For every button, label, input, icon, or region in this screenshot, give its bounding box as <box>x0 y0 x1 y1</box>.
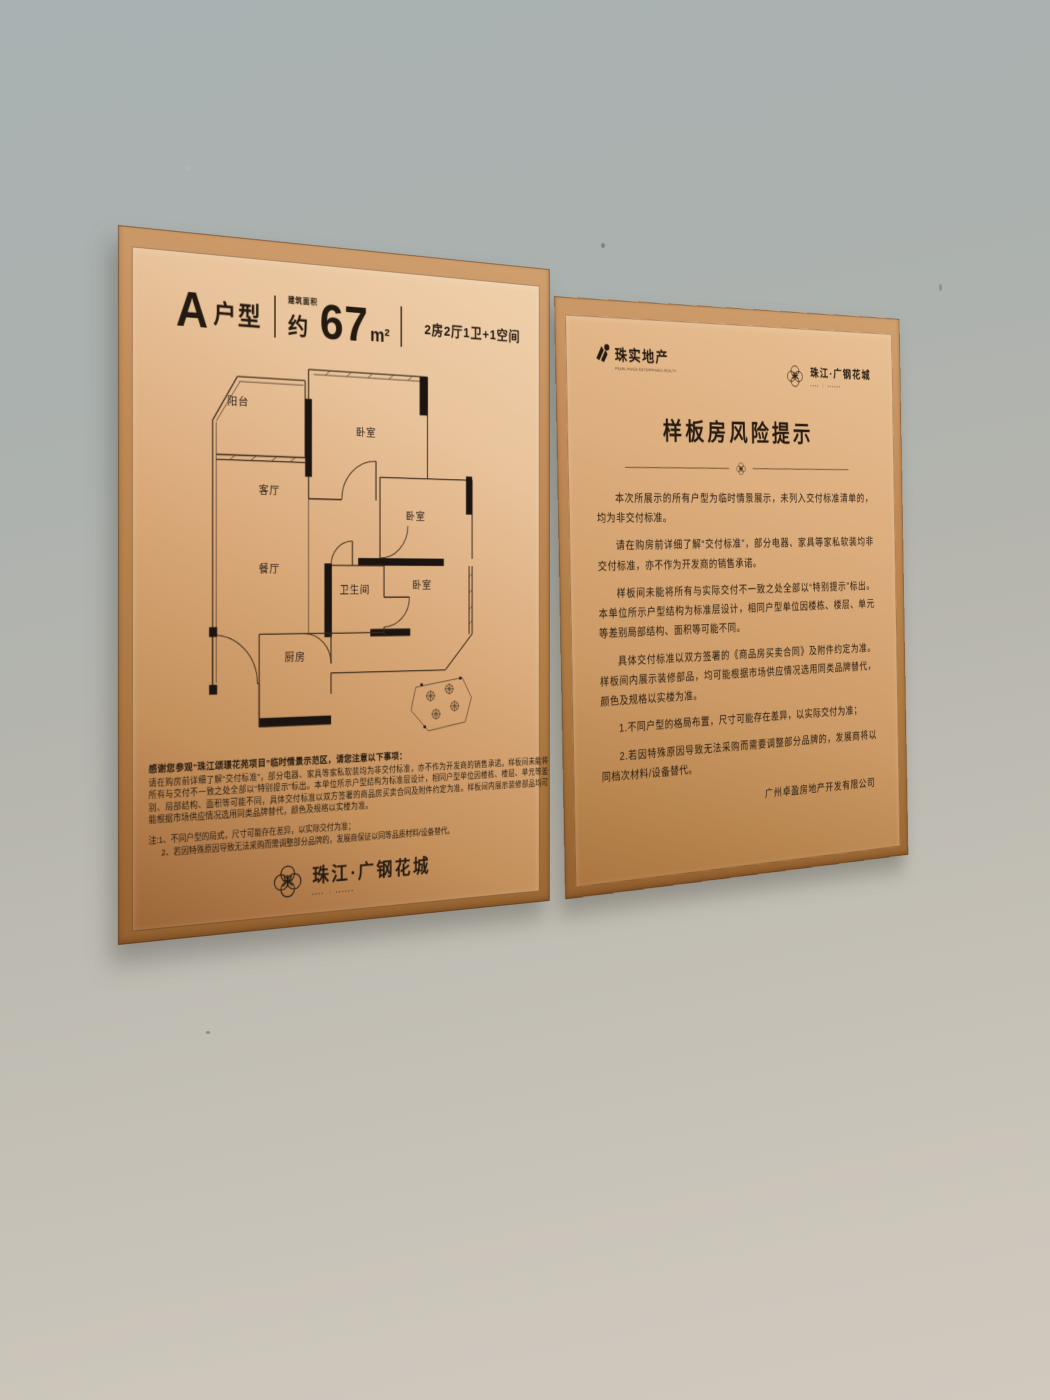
title-divider: 米 <box>596 460 872 477</box>
developer-name: 珠实地产 <box>615 343 677 368</box>
wall-mark <box>601 243 605 248</box>
notice-title: 样板房风险提示 <box>595 410 872 451</box>
svg-text:米: 米 <box>283 873 294 889</box>
floorplan: 阳台 客厅 卧室 卧室 餐厅 卫生间 卧室 厨房 <box>196 348 484 753</box>
room-label-dining: 餐厅 <box>259 562 280 576</box>
room-label-living: 客厅 <box>259 483 280 497</box>
header-divider <box>401 306 403 347</box>
svg-text:米: 米 <box>791 371 798 381</box>
brand-tagline: ▪▪▪▪ ｜ ▪▪▪▪▪▪ <box>810 383 871 391</box>
wall-background: A 户型 建筑面积 约 67 m² 2房2厅1卫+1空间 <box>0 0 1050 1400</box>
area-label: 建筑面积 <box>288 295 318 308</box>
plaque-face: 珠实地产 PEARL RIVER ENTERPRISES REALTY 米 <box>565 314 900 887</box>
room-label-bedroom-2: 卧室 <box>406 509 426 523</box>
brand-emblem-icon: 米 <box>786 363 805 388</box>
risk-notice-plaque: 珠实地产 PEARL RIVER ENTERPRISES REALTY 米 <box>554 296 908 899</box>
room-label-balcony: 阳台 <box>227 394 249 409</box>
plaque-face: A 户型 建筑面积 约 67 m² 2房2厅1卫+1空间 <box>132 246 540 931</box>
wall-mark <box>939 284 942 291</box>
unit-suffix: 户型 <box>213 294 262 334</box>
notice-paragraph: 本次所展示的所有户型为临时情景展示，未列入交付标准清单的，均为非交付标准。 <box>596 488 873 528</box>
notice-paragraph: 具体交付标准以双方签署的《商品房买卖合同》及附件约定为准。样板间内展示装修部品，… <box>599 638 876 712</box>
brand-name: 珠江·广钢花城 <box>810 364 871 383</box>
notice-body: 本次所展示的所有户型为临时情景展示，未列入交付标准清单的，均为非交付标准。 请在… <box>596 488 877 787</box>
divider-emblem-icon: 米 <box>735 461 746 475</box>
developer-logo: 珠实地产 PEARL RIVER ENTERPRISES REALTY <box>594 342 677 373</box>
area-prefix: 约 <box>288 307 308 342</box>
keyplan-minimap <box>411 676 471 731</box>
unit-area: 建筑面积 约 67 m² <box>288 295 390 348</box>
floorplan-plaque: A 户型 建筑面积 约 67 m² 2房2厅1卫+1空间 <box>118 225 550 945</box>
notice-paragraph: 样板间未能将所有与实际交付不一致之处全部以“特别提示”标出。本单位所示户型结构为… <box>598 576 875 644</box>
wall-mark <box>206 1031 210 1034</box>
floorplan-drawing: 阳台 客厅 卧室 卧室 餐厅 卫生间 卧室 厨房 <box>196 348 484 753</box>
header-divider <box>274 295 276 337</box>
brand-logo: 米 珠江·广钢花城 ▪▪▪▪ ｜ ▪▪▪▪▪▪ <box>786 363 871 391</box>
layout-description: 2房2厅1卫+1空间 <box>424 319 520 346</box>
room-label-kitchen: 厨房 <box>284 651 305 664</box>
developer-logo-icon <box>594 342 611 364</box>
area-value: 67 <box>320 301 369 346</box>
plaque-board: A 户型 建筑面积 约 67 m² 2房2厅1卫+1空间 <box>118 225 913 955</box>
brand-emblem-icon: 米 <box>272 862 304 901</box>
unit-header: A 户型 建筑面积 约 67 m² 2房2厅1卫+1空间 <box>176 284 527 359</box>
unit-name: A <box>176 284 208 336</box>
room-label-bathroom: 卫生间 <box>340 583 371 597</box>
room-label-bedroom-3: 卧室 <box>412 578 432 591</box>
notice-paragraph: 请在购房前详细了解“交付标准”，部分电器、家具等家私软装均非交付标准，亦不作为开… <box>597 533 874 576</box>
area-unit: m² <box>370 325 390 348</box>
room-label-bedroom-1: 卧室 <box>356 426 376 440</box>
